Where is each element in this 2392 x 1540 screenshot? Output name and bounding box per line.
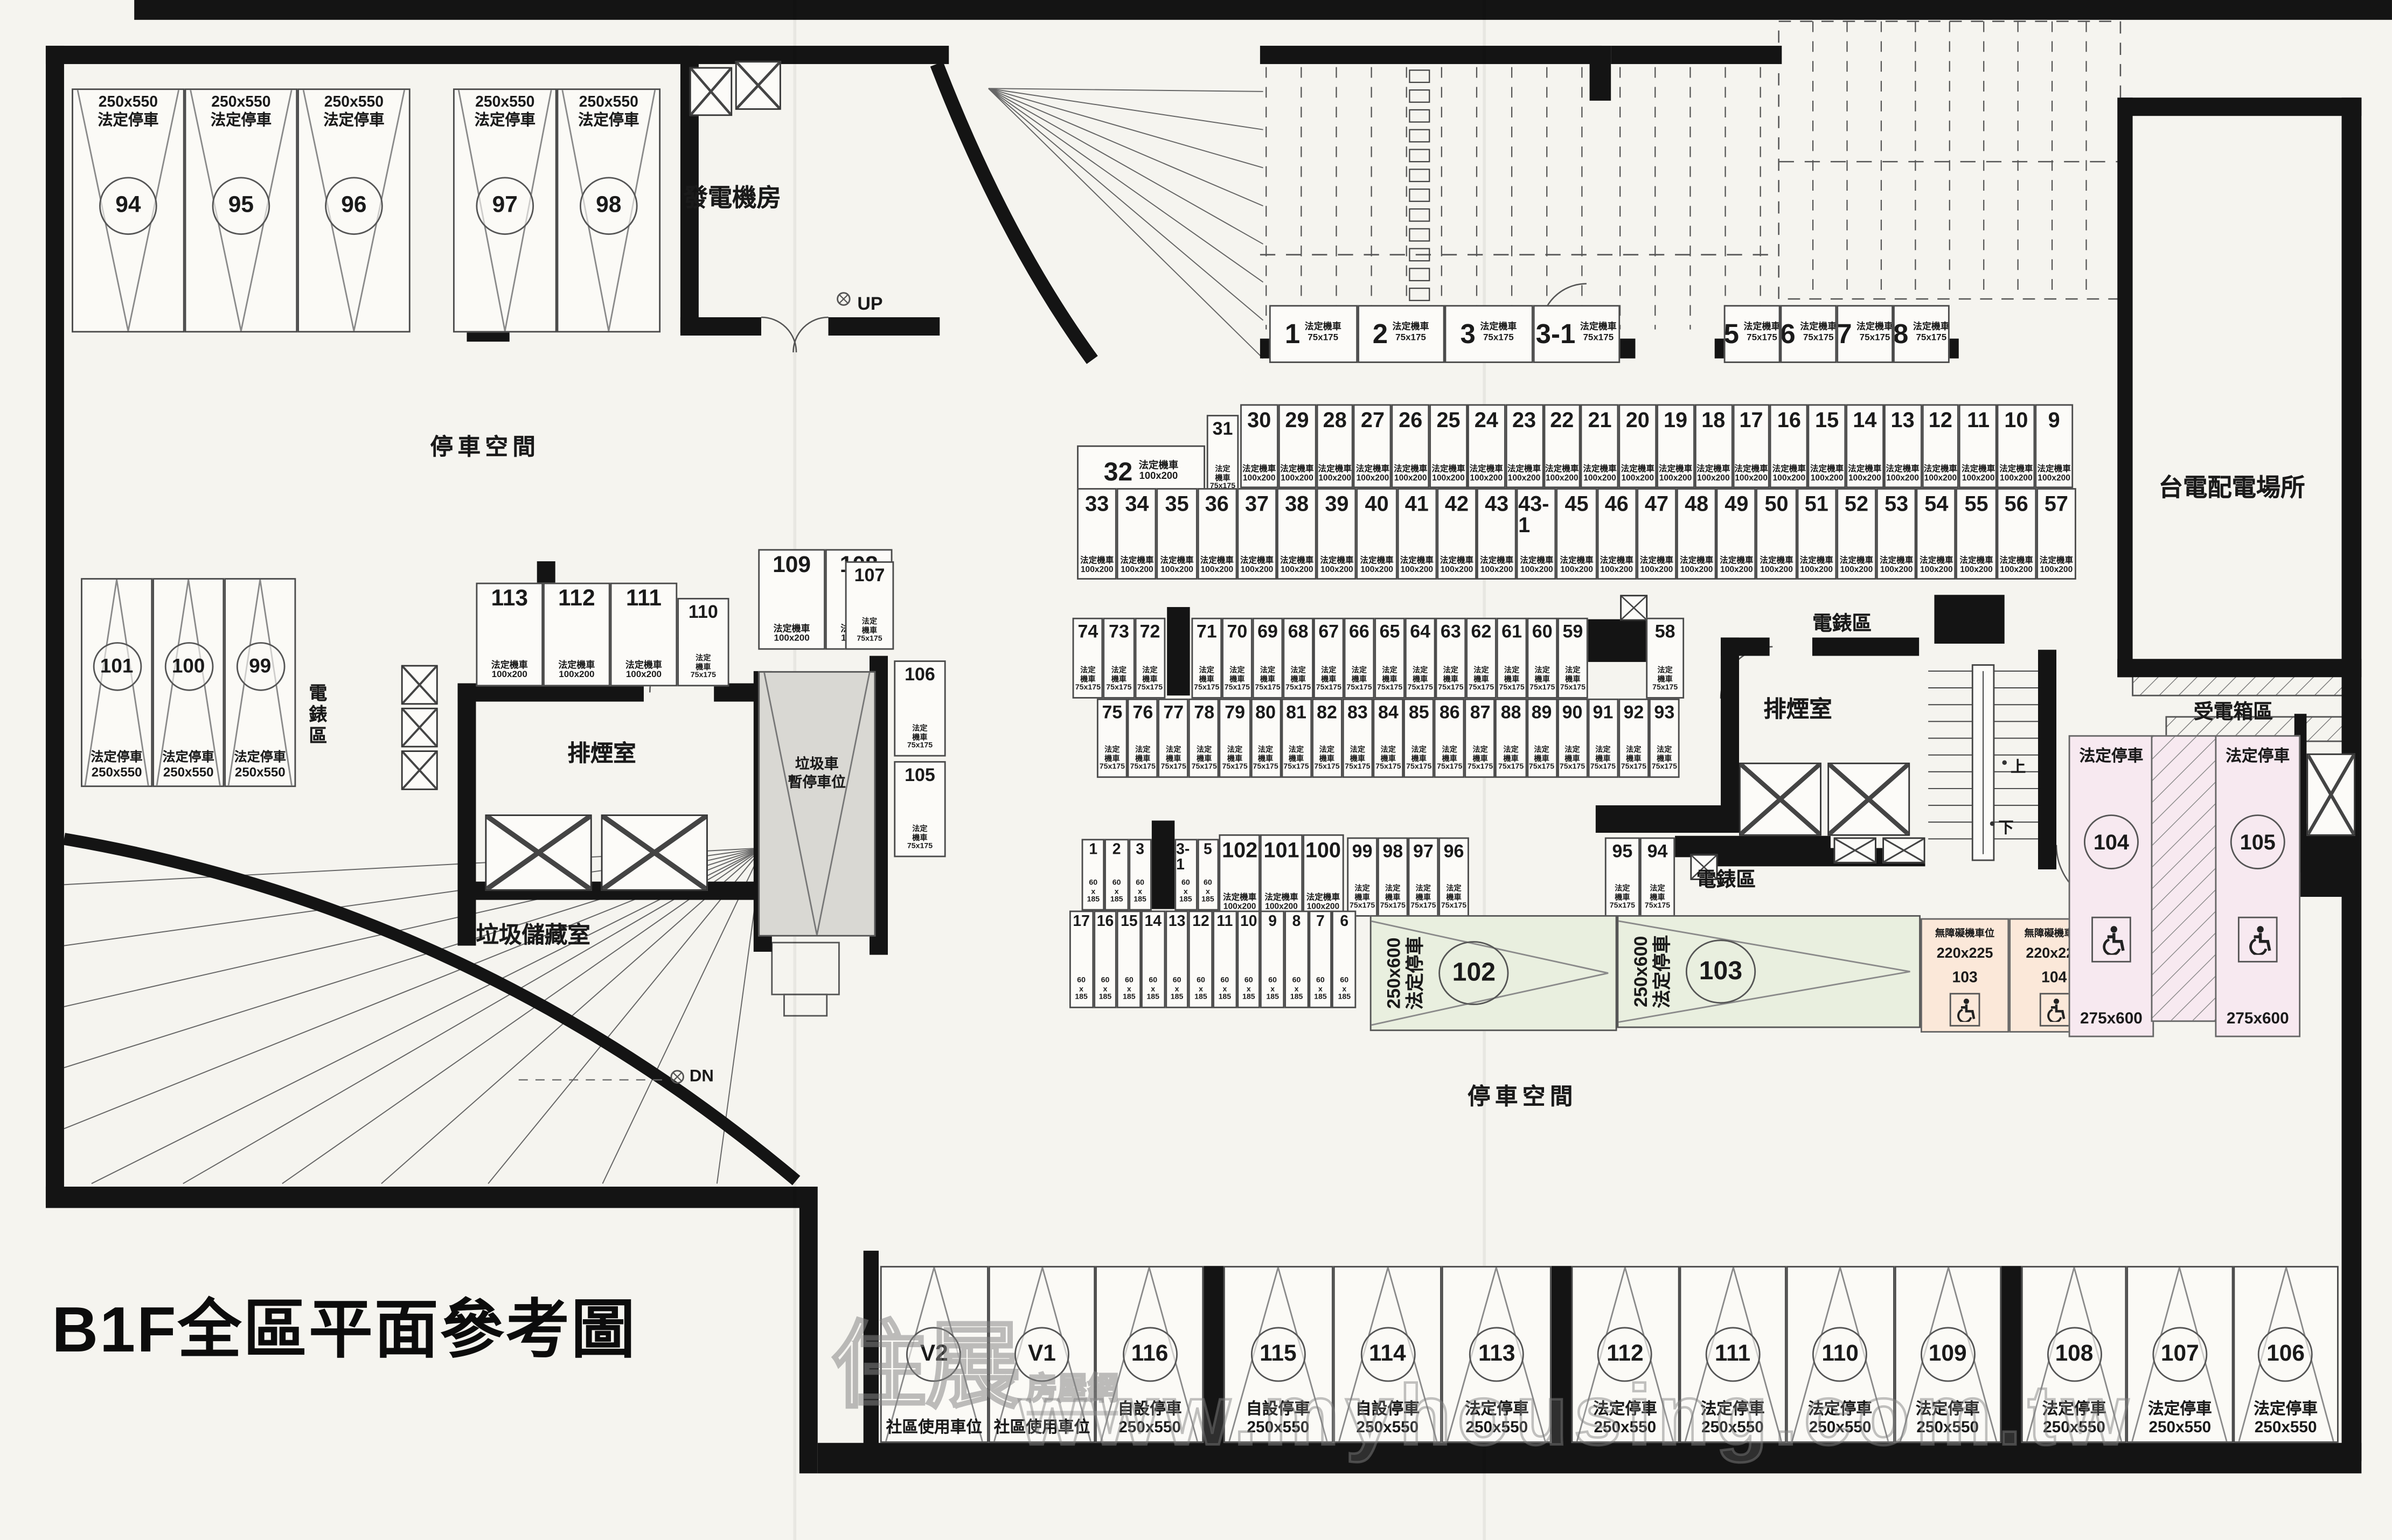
moto-stall-48: 48法定機車100x200 [1677, 488, 1716, 580]
moto-stall-109: 109法定機車100x200 [758, 549, 825, 650]
car-stall-106: 法定停車250x550106 [2233, 1266, 2338, 1443]
moto-stall-42: 42法定機車100x200 [1437, 488, 1477, 580]
moto-cluster-110: 110法定機車75x175 [677, 598, 729, 686]
car-stall-101: 法定停車250x550101 [81, 578, 152, 787]
elevator-icon [1739, 763, 1821, 836]
area-label-meter-left: 電錶區 [305, 684, 331, 748]
moto-stall-10: 1060x185 [1237, 910, 1261, 1008]
area-label-parking-center: 停車空間 [1468, 1080, 1577, 1112]
moto-stall-99: 99法定機車75x175 [1347, 838, 1378, 917]
moto-cluster-105: 105法定機車75x175 [894, 761, 945, 857]
area-label-meter-right: 電錶區 [1812, 607, 1872, 636]
stair-label-up: 上 [2011, 754, 2026, 776]
moto-stall-67: 67法定機車75x175 [1313, 618, 1344, 699]
moto-stall-26: 26法定機車100x200 [1392, 404, 1429, 488]
moto-stall-95: 95法定機車75x175 [1605, 838, 1640, 917]
moto-stall-39: 39法定機車100x200 [1317, 488, 1357, 580]
moto-row-d-e: 95法定機車75x17594法定機車75x175 [1605, 838, 1675, 917]
car-stall-V2: 社區使用車位V2 [880, 1266, 988, 1443]
room-label-garbage-storage: 垃圾儲藏室 [476, 918, 590, 950]
moto-stall-7: 7法定機車75x175 [1837, 305, 1893, 363]
page-title: B1F全區平面參考圖 [52, 1278, 637, 1371]
moto-stall-7: 760x185 [1309, 910, 1332, 1008]
car-stall-114: 自設停車250x550114 [1333, 1266, 1442, 1443]
wall [1721, 638, 1739, 824]
moto-stall-65: 65法定機車75x175 [1374, 618, 1405, 699]
moto-stall-2: 260x185 [1105, 839, 1128, 910]
moto-stall-111: 111法定機車100x200 [610, 583, 678, 687]
wall [1167, 607, 1190, 695]
moto-stall-62: 62法定機車75x175 [1466, 618, 1497, 699]
moto-stall-34: 34法定機車100x200 [1117, 488, 1157, 580]
moto-stall-71: 71法定機車75x175 [1191, 618, 1222, 699]
meter-shaft-icon [1834, 838, 1876, 863]
moto-stall-98: 98法定機車75x175 [1378, 838, 1408, 917]
moto-stall-45: 45法定機車100x200 [1556, 488, 1596, 580]
wall [2001, 1266, 2021, 1446]
wall [46, 1187, 809, 1208]
shaft-icon [1620, 595, 1647, 621]
moto-stall-110: 110法定機車75x175 [677, 598, 729, 686]
moto-stall-77: 77法定機車75x175 [1158, 699, 1189, 778]
wall [1934, 595, 2004, 644]
moto-stall-8: 860x185 [1284, 910, 1308, 1008]
car-stall-108: 法定停車250x550108 [2021, 1266, 2127, 1443]
moto-stall-6: 660x185 [1332, 910, 1356, 1008]
wall [1152, 820, 1174, 909]
car-stall-111: 法定停車250x550111 [1679, 1266, 1786, 1443]
moto-stall-57: 57法定機車100x200 [2036, 488, 2076, 580]
garbage-truck-stall: 垃圾車暫停車位 [758, 671, 875, 937]
wall [46, 46, 64, 1205]
moto-stall-68: 68法定機車75x175 [1283, 618, 1313, 699]
car-row-midleft: 法定停車250x550101法定停車250x550100法定停車250x5509… [81, 578, 296, 787]
moto-stall-72: 72法定機車75x175 [1135, 618, 1166, 699]
car-stall-110: 法定停車250x550110 [1786, 1266, 1894, 1443]
wheelchair-icon [2039, 993, 2069, 1026]
car-stall-105: 法定停車 105 275x600 [2215, 735, 2300, 1037]
moto-stall-49: 49法定機車100x200 [1716, 488, 1756, 580]
moto-stall-41: 41法定機車100x200 [1397, 488, 1437, 580]
moto-stall-30: 30法定機車100x200 [1240, 404, 1278, 488]
vent-shaft-icon [735, 61, 781, 110]
moto-stall-3-1: 3-160x185 [1174, 839, 1197, 910]
room-label-taipower: 台電配電場所 [2159, 466, 2305, 503]
car-stall-100: 法定停車250x550100 [152, 578, 224, 787]
moto-stall-11: 11法定機車100x200 [1959, 404, 1997, 488]
wall [818, 1443, 2362, 1474]
car-stall-102: 250x600法定停車 102 [1370, 915, 1617, 1031]
car-stall-104: 法定停車 104 275x600 [2069, 735, 2154, 1037]
moto-stall-78: 78法定機車75x175 [1189, 699, 1220, 778]
room-label-smoke-right: 排煙室 [1763, 693, 1832, 724]
moto-stall-102: 102法定機車100x200 [1219, 834, 1260, 917]
car-row-bottom-1: 社區使用車位V2社區使用車位V1自設停車250x550116 [880, 1266, 1204, 1443]
moto-stall-12: 1260x185 [1189, 910, 1213, 1008]
moto-row-b-bottom: 33法定機車100x20034法定機車100x20035法定機車100x2003… [1077, 488, 2076, 580]
moto-stall-93: 93法定機車75x175 [1649, 699, 1680, 778]
moto-stall-29: 29法定機車100x200 [1278, 404, 1316, 488]
moto-stall-79: 79法定機車75x175 [1220, 699, 1250, 778]
wheelchair-icon [1950, 993, 1980, 1026]
elevator-icon [485, 814, 592, 891]
moto-stall-21: 21法定機車100x200 [1581, 404, 1618, 488]
moto-stall-113: 113法定機車100x200 [476, 583, 543, 687]
moto-stall-3: 360x185 [1128, 839, 1151, 910]
moto-stall-80: 80法定機車75x175 [1250, 699, 1281, 778]
car-stall-109: 法定停車250x550109 [1894, 1266, 2001, 1443]
moto-stall-55: 55法定機車100x200 [1956, 488, 1996, 580]
moto-stall-2: 2法定機車75x175 [1357, 305, 1445, 363]
moto-stall-53: 53法定機車100x200 [1876, 488, 1916, 580]
car-stall-94: 250x550法定停車94 [72, 88, 185, 332]
moto-stall-70: 70法定機車75x175 [1222, 618, 1253, 699]
moto-stall-35: 35法定機車100x200 [1157, 488, 1197, 580]
moto-row-d-c: 102法定機車100x200101法定機車100x200100法定機車100x2… [1219, 834, 1344, 917]
shaft-icon [2306, 754, 2355, 836]
moto-row-d-d: 99法定機車75x17598法定機車75x17597法定機車75x17596法定… [1347, 838, 1469, 917]
accessible-moto-stall-103: 無障礙機車位 220x225 103 [1921, 918, 2009, 1033]
moto-stall-36: 36法定機車100x200 [1197, 488, 1237, 580]
ramp-label-dn: DN [690, 1068, 714, 1086]
moto-stall-64: 64法定機車75x175 [1405, 618, 1436, 699]
moto-stall-75: 75法定機車75x175 [1097, 699, 1128, 778]
elevator-icon [601, 814, 708, 891]
moto-stall-9: 960x185 [1261, 910, 1284, 1008]
moto-stall-5: 560x185 [1197, 839, 1219, 910]
meter-shaft-icon [401, 665, 438, 705]
moto-stall-46: 46法定機車100x200 [1597, 488, 1637, 580]
moto-cluster-106: 106法定機車75x175 [894, 660, 945, 756]
car-stall-107: 法定停車250x550107 [2127, 1266, 2233, 1443]
moto-stall-20: 20法定機車100x200 [1619, 404, 1657, 488]
moto-stall-15: 1560x185 [1117, 910, 1141, 1008]
moto-stall-66: 66法定機車75x175 [1344, 618, 1375, 699]
wall [829, 317, 940, 336]
wall [1204, 1266, 1223, 1446]
car-stall-116: 自設停車250x550116 [1096, 1266, 1204, 1443]
moto-stall-43-1: 43-1法定機車100x200 [1517, 488, 1556, 580]
moto-row-c-top-b: 71法定機車75x17570法定機車75x17569法定機車75x17568法定… [1191, 618, 1588, 699]
car-row-topleft-b: 250x550法定停車97250x550法定停車98 [453, 88, 660, 332]
moto-row-a-left: 1法定機車75x1752法定機車75x1753法定機車75x1753-1法定機車… [1269, 305, 1620, 363]
moto-stall-89: 89法定機車75x175 [1526, 699, 1557, 778]
vent-shaft-icon [690, 67, 732, 116]
area-label-parking-left: 停車空間 [430, 430, 540, 462]
wall [2038, 650, 2056, 869]
moto-stall-86: 86法定機車75x175 [1434, 699, 1465, 778]
moto-stall-43: 43法定機車100x200 [1477, 488, 1517, 580]
moto-stall-51: 51法定機車100x200 [1797, 488, 1837, 580]
moto-stall-82: 82法定機車75x175 [1312, 699, 1343, 778]
moto-stall-12: 12法定機車100x200 [1922, 404, 1959, 488]
moto-stall-37: 37法定機車100x200 [1237, 488, 1277, 580]
moto-cell-58: 58法定機車75x175 [1646, 618, 1684, 699]
moto-stall-97: 97法定機車75x175 [1408, 838, 1439, 917]
moto-stall-47: 47法定機車100x200 [1637, 488, 1677, 580]
car-stall-115: 自設停車250x550115 [1223, 1266, 1333, 1443]
moto-stall-91: 91法定機車75x175 [1588, 699, 1618, 778]
car-stall-V1: 社區使用車位V1 [988, 1266, 1096, 1443]
wall [46, 46, 949, 64]
meter-shaft-icon [1882, 838, 1925, 863]
wall [2117, 97, 2132, 677]
wall [1588, 619, 1649, 662]
moto-stall-85: 85法定機車75x175 [1403, 699, 1434, 778]
moto-stall-69: 69法定機車75x175 [1253, 618, 1283, 699]
moto-cluster-113-111: 113法定機車100x200112法定機車100x200111法定機車100x2… [476, 583, 677, 687]
car-row-bottom-3: 法定停車250x550112法定停車250x550111法定停車250x5501… [1572, 1266, 2002, 1443]
moto-stall-15: 15法定機車100x200 [1808, 404, 1846, 488]
moto-stall-90: 90法定機車75x175 [1557, 699, 1588, 778]
stair-label-down: 下 [1998, 814, 2013, 837]
area-label-meter-center: 電錶區 [1696, 863, 1756, 893]
moto-stall-17: 1760x185 [1069, 910, 1093, 1008]
moto-stall-11: 1160x185 [1213, 910, 1236, 1008]
moto-stall-101: 101法定機車100x200 [1261, 834, 1302, 917]
moto-stall-6: 6法定機車75x175 [1780, 305, 1837, 363]
wall [680, 317, 761, 336]
wall [864, 1251, 879, 1446]
meter-shaft-icon [401, 708, 438, 748]
moto-stall-14: 1460x185 [1141, 910, 1165, 1008]
wheelchair-icon [2091, 917, 2131, 963]
moto-stall-16: 16法定機車100x200 [1770, 404, 1808, 488]
moto-stall-10: 10法定機車100x200 [1997, 404, 2035, 488]
moto-stall-22: 22法定機車100x200 [1543, 404, 1581, 488]
car-row-bottom-2: 自設停車250x550115自設停車250x550114法定停車250x5501… [1223, 1266, 1552, 1443]
ramp-label-up: UP [857, 293, 882, 315]
moto-row-a-right: 5法定機車75x1756法定機車75x1757法定機車75x1758法定機車75… [1724, 305, 1950, 363]
wall [1611, 46, 1782, 64]
moto-stall-3-1: 3-1法定機車75x175 [1532, 305, 1620, 363]
moto-stall-5: 5法定機車75x175 [1724, 305, 1781, 363]
moto-stall-92: 92法定機車75x175 [1618, 699, 1649, 778]
car-stall-103: 250x600法定停車 103 [1617, 915, 1920, 1028]
car-stall-112: 法定停車250x550112 [1572, 1266, 1679, 1443]
moto-stall-27: 27法定機車100x200 [1354, 404, 1392, 488]
moto-stall-8: 8法定機車75x175 [1893, 305, 1950, 363]
moto-stall-81: 81法定機車75x175 [1281, 699, 1312, 778]
moto-stall-112: 112法定機車100x200 [543, 583, 610, 687]
car-stall-99: 法定停車250x55099 [224, 578, 296, 787]
moto-stall-1: 160x185 [1082, 839, 1105, 910]
moto-row-c-bottom: 75法定機車75x17576法定機車75x17577法定機車75x17578法定… [1097, 699, 1680, 778]
moto-stall-3: 3法定機車75x175 [1445, 305, 1533, 363]
area-label-power-box: 受電箱區 [2194, 695, 2273, 724]
moto-stall-33: 33法定機車100x200 [1077, 488, 1117, 580]
moto-stall-13: 13法定機車100x200 [1883, 404, 1921, 488]
moto-stall-105: 105法定機車75x175 [894, 761, 945, 857]
wall [799, 1187, 818, 1473]
moto-stall-25: 25法定機車100x200 [1429, 404, 1467, 488]
floor-plan-b1f: 250x550法定停車94250x550法定停車95250x550法定停車96 … [0, 0, 2392, 1540]
car-stall-95: 250x550法定停車95 [185, 88, 298, 332]
moto-stall-19: 19法定機車100x200 [1657, 404, 1694, 488]
moto-row-d-b: 3-160x185560x185 [1174, 839, 1219, 910]
moto-stall-17: 17法定機車100x200 [1732, 404, 1770, 488]
moto-stall-16: 1660x185 [1093, 910, 1117, 1008]
moto-cluster-107: 107法定機車75x175 [845, 561, 894, 650]
moto-stall-59: 59法定機車75x175 [1557, 618, 1588, 699]
wall [1812, 638, 1919, 656]
moto-stall-73: 73法定機車75x175 [1103, 618, 1135, 699]
moto-stall-9: 9法定機車100x200 [2035, 404, 2073, 488]
moto-stall-28: 28法定機車100x200 [1316, 404, 1354, 488]
car-stall-113: 法定停車250x550113 [1442, 1266, 1552, 1443]
moto-stall-83: 83法定機車75x175 [1342, 699, 1373, 778]
car-row-bottom-4: 法定停車250x550108法定停車250x550107法定停車250x5501… [2021, 1266, 2339, 1443]
room-label-generator: 發電機房 [684, 177, 781, 213]
moto-stall-58: 58法定機車75x175 [1646, 618, 1684, 699]
moto-stall-107: 107法定機車75x175 [845, 561, 894, 650]
moto-row-b-top: 30法定機車100x20029法定機車100x20028法定機車100x2002… [1240, 404, 2073, 488]
moto-stall-88: 88法定機車75x175 [1496, 699, 1526, 778]
car-row-topleft-a: 250x550法定停車94250x550法定停車95250x550法定停車96 [72, 88, 411, 332]
wall [1590, 46, 1611, 101]
moto-stall-54: 54法定機車100x200 [1916, 488, 1956, 580]
moto-stall-18: 18法定機車100x200 [1694, 404, 1732, 488]
moto-stall-14: 14法定機車100x200 [1846, 404, 1883, 488]
moto-stall-63: 63法定機車75x175 [1436, 618, 1466, 699]
wall [2117, 659, 2361, 677]
moto-stall-61: 61法定機車75x175 [1497, 618, 1527, 699]
car-stall-98: 250x550法定停車98 [557, 88, 661, 332]
wall [134, 0, 2392, 20]
moto-stall-31: 31法定機車75x175 [1207, 415, 1239, 497]
meter-shaft-icon [401, 750, 438, 790]
wall [2120, 97, 2361, 116]
room-label-smoke-left: 排煙室 [567, 737, 636, 769]
moto-stall-56: 56法定機車100x200 [1997, 488, 2036, 580]
moto-stall-106: 106法定機車75x175 [894, 660, 945, 756]
moto-stall-100: 100法定機車100x200 [1302, 834, 1344, 917]
elevator-icon [1827, 763, 1910, 836]
moto-stall-50: 50法定機車100x200 [1756, 488, 1796, 580]
moto-stall-38: 38法定機車100x200 [1277, 488, 1317, 580]
moto-cell-31: 31法定機車75x175 [1207, 415, 1239, 497]
moto-row-d-bottom: 1760x1851660x1851560x1851460x1851360x185… [1069, 910, 1356, 1008]
wall [1552, 1266, 1572, 1446]
hatched-divider [2151, 735, 2219, 1022]
moto-stall-1: 1法定機車75x175 [1269, 305, 1357, 363]
moto-stall-60: 60法定機車75x175 [1527, 618, 1557, 699]
moto-stall-40: 40法定機車100x200 [1357, 488, 1396, 580]
moto-stall-52: 52法定機車100x200 [1837, 488, 1876, 580]
moto-stall-24: 24法定機車100x200 [1468, 404, 1505, 488]
moto-row-c-top-a: 74法定機車75x17573法定機車75x17572法定機車75x175 [1073, 618, 1166, 699]
wall [457, 684, 476, 946]
moto-stall-94: 94法定機車75x175 [1640, 838, 1675, 917]
moto-stall-13: 1360x185 [1165, 910, 1188, 1008]
car-stall-97: 250x550法定停車97 [453, 88, 557, 332]
car-stall-96: 250x550法定停車96 [297, 88, 411, 332]
wall [1260, 46, 1602, 64]
moto-stall-74: 74法定機車75x175 [1073, 618, 1104, 699]
moto-stall-84: 84法定機車75x175 [1373, 699, 1403, 778]
moto-row-d-a: 160x185260x185360x185 [1082, 839, 1152, 910]
moto-stall-23: 23法定機車100x200 [1505, 404, 1543, 488]
moto-stall-87: 87法定機車75x175 [1465, 699, 1496, 778]
moto-stall-96: 96法定機車75x175 [1438, 838, 1469, 917]
moto-stall-76: 76法定機車75x175 [1128, 699, 1158, 778]
wheelchair-icon [2238, 917, 2278, 963]
